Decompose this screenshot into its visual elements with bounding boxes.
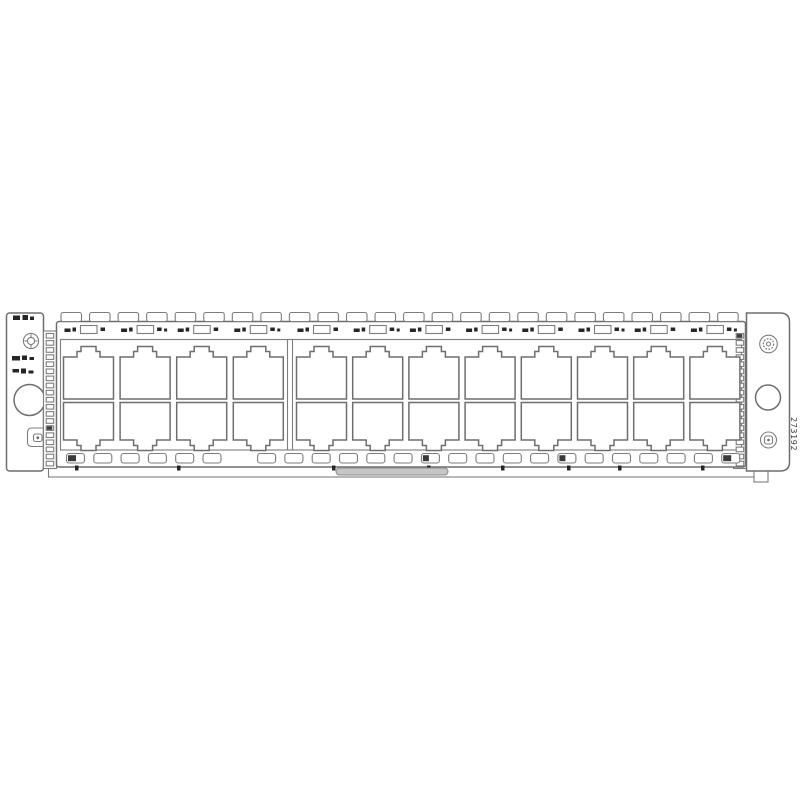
top-edge-tab — [432, 313, 453, 322]
port-label-mark — [306, 328, 310, 332]
led-slot — [285, 454, 303, 464]
port-label-mark — [354, 329, 360, 333]
led-slot — [531, 454, 549, 464]
led-slot — [585, 454, 603, 464]
port-label-mark — [587, 328, 591, 332]
port-label-mark — [410, 329, 416, 333]
top-edge-tab — [603, 313, 624, 322]
port-label-mark — [390, 328, 395, 332]
top-edge-tab — [61, 313, 82, 322]
led-index-tick — [332, 466, 336, 471]
led-dark-mark — [68, 455, 76, 461]
top-edge-tab — [118, 313, 139, 322]
port-label-mark — [643, 328, 647, 332]
led-slot — [694, 454, 712, 464]
left-thumbscrew-hole — [14, 385, 45, 416]
faceplate-drawing — [0, 0, 800, 800]
top-edge-tab — [689, 313, 710, 322]
port-label-mark — [671, 328, 676, 332]
port-label-mark — [502, 328, 507, 332]
emi-finger — [46, 369, 54, 374]
led-slot — [503, 454, 521, 464]
port-label-mark — [635, 329, 641, 333]
port-label-mark — [101, 328, 106, 332]
led-slot — [121, 454, 139, 464]
port-label-box — [137, 326, 154, 334]
port-label-mark — [242, 328, 246, 332]
emi-finger — [46, 376, 54, 381]
port-label-mark — [186, 328, 190, 332]
port-label-mark — [73, 328, 77, 332]
port-label-box — [81, 326, 98, 334]
emi-finger — [46, 383, 54, 388]
led-slot — [613, 454, 631, 464]
led-dark-mark — [423, 455, 429, 461]
led-slot — [203, 454, 221, 464]
port-label-mark — [234, 329, 240, 333]
port-group-divider — [288, 340, 293, 451]
port-label-mark — [530, 328, 534, 332]
emi-finger-dark-mark — [47, 426, 53, 429]
part-number: 273192 — [789, 417, 798, 451]
port-label-box — [370, 326, 387, 334]
port-label-mark — [522, 329, 528, 333]
emi-finger — [46, 461, 54, 466]
module-illustration: 273192 — [0, 0, 800, 800]
pull-handle — [336, 468, 448, 475]
emi-finger — [46, 397, 54, 402]
led-dark-mark — [723, 455, 731, 461]
emi-finger — [46, 348, 54, 353]
emi-finger — [736, 348, 744, 353]
port-label-mark — [65, 329, 71, 333]
port-label-box — [482, 326, 499, 334]
top-edge-tab — [232, 313, 253, 322]
port-label-box — [250, 326, 266, 334]
right-thumbscrew-hole — [756, 385, 781, 410]
port-label-mark — [727, 328, 732, 332]
port-label-box — [194, 326, 211, 334]
led-slot — [394, 454, 412, 464]
port-label-box — [426, 326, 443, 334]
port-label-box — [538, 326, 555, 334]
emi-finger — [46, 390, 54, 395]
emi-finger-dark-mark — [737, 334, 743, 337]
emi-finger — [46, 355, 54, 360]
top-edge-tab — [518, 313, 539, 322]
led-index-tick — [501, 466, 505, 471]
port-label-mark — [579, 329, 585, 333]
led-dark-mark — [559, 455, 565, 461]
top-edge-tab — [489, 313, 510, 322]
emi-finger — [46, 419, 54, 424]
emi-finger — [46, 362, 54, 367]
top-edge-tab — [461, 313, 482, 322]
port-label-mark — [362, 328, 366, 332]
port-label-mark — [734, 329, 737, 332]
emi-finger — [46, 341, 54, 346]
emi-finger — [46, 447, 54, 452]
port-label-mark — [699, 328, 703, 332]
emi-finger — [46, 412, 54, 417]
led-slot — [94, 454, 112, 464]
port-label-box — [314, 326, 331, 334]
led-slot — [667, 454, 685, 464]
led-slot — [449, 454, 467, 464]
top-edge-tab — [575, 313, 596, 322]
emi-finger — [46, 334, 54, 339]
port-label-mark — [121, 329, 127, 333]
port-label-mark — [164, 329, 167, 332]
port-label-mark — [178, 329, 184, 333]
port-label-mark — [509, 329, 512, 332]
led-index-tick — [701, 466, 705, 471]
port-label-mark — [298, 329, 304, 333]
port-label-mark — [157, 328, 162, 332]
led-slot — [367, 454, 385, 464]
port-label-mark — [277, 329, 280, 332]
top-edge-tab — [632, 313, 653, 322]
port-label-mark — [622, 329, 625, 332]
led-slot — [640, 454, 658, 464]
top-edge-tab — [375, 313, 396, 322]
led-slot — [176, 454, 194, 464]
led-index-tick — [567, 466, 571, 471]
port-label-box — [595, 326, 612, 334]
port-label-box — [707, 326, 724, 334]
port-label-mark — [615, 328, 620, 332]
port-label-mark — [129, 328, 133, 332]
top-edge-tab — [147, 313, 168, 322]
led-slot — [340, 454, 358, 464]
top-edge-tab — [318, 313, 339, 322]
led-slot — [312, 454, 330, 464]
top-edge-tab — [661, 313, 682, 322]
port-label-mark — [691, 329, 697, 333]
led-index-tick — [618, 466, 622, 471]
port-label-mark — [558, 328, 563, 332]
port-label-mark — [446, 328, 451, 332]
port-label-box — [651, 326, 668, 334]
emi-finger — [46, 440, 54, 445]
led-slot — [476, 454, 494, 464]
top-edge-tab — [546, 313, 567, 322]
top-edge-tab — [718, 313, 739, 322]
port-label-mark — [397, 329, 400, 332]
top-edge-tab — [404, 313, 425, 322]
top-edge-tab — [347, 313, 368, 322]
emi-finger — [736, 447, 744, 452]
top-edge-tab — [261, 313, 282, 322]
led-index-tick — [75, 466, 79, 471]
port-label-mark — [334, 328, 339, 332]
top-edge-tab — [289, 313, 310, 322]
emi-finger — [46, 405, 54, 410]
led-slot — [148, 454, 166, 464]
port-label-mark — [466, 329, 472, 333]
emi-finger — [46, 433, 54, 438]
port-label-mark — [270, 328, 275, 332]
port-label-mark — [474, 328, 478, 332]
led-index-tick — [177, 466, 181, 471]
emi-finger — [736, 341, 744, 346]
top-edge-tab — [90, 313, 111, 322]
led-slot — [258, 454, 276, 464]
top-edge-tab — [204, 313, 225, 322]
emi-finger — [46, 454, 54, 459]
port-label-mark — [418, 328, 422, 332]
top-edge-tab — [175, 313, 196, 322]
port-label-mark — [214, 328, 219, 332]
